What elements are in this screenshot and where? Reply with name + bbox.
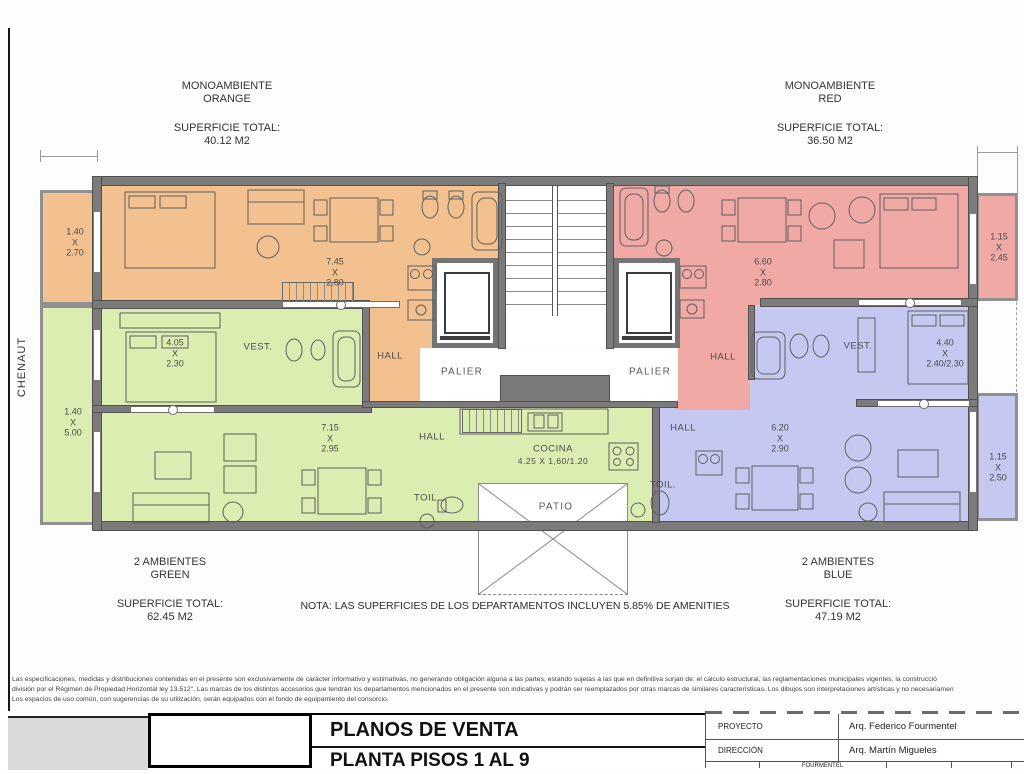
- dimension-tick: [40, 150, 41, 162]
- room-label-hall-blue: HALL: [670, 423, 696, 434]
- direccion-value: Arq. Martín Migueles: [839, 740, 1024, 761]
- disclaimer-line-1: Las especificaciones, medidas y distribu…: [12, 675, 1016, 685]
- dim-blue-living: 6.20 X 2.90: [771, 422, 789, 454]
- green-name: GREEN: [55, 569, 285, 582]
- dim-orange-balcony: 1.40 X 2.70: [66, 226, 84, 258]
- proyecto-value: Arq. Federico Fourmentel: [839, 714, 1024, 739]
- blue-type: 2 AMBIENTES: [723, 556, 953, 569]
- window-slit: [94, 330, 100, 380]
- dim-blue-bedroom: 4.40 X 2.40/2.30: [926, 337, 964, 369]
- blue-superficie-value: 47.19 M2: [723, 611, 953, 624]
- table-partial-row: FOURMENTEL: [706, 762, 1024, 768]
- green-unit-footer: 2 AMBIENTES GREEN SUPERFICIE TOTAL: 62.4…: [55, 556, 285, 624]
- window-slit: [94, 432, 100, 492]
- elevator-right: [614, 258, 680, 348]
- unit-green-left: [100, 309, 362, 530]
- room-label-palier-left: PALIER: [441, 367, 483, 378]
- wall: [92, 176, 978, 186]
- title-block-table: PROYECTO Arq. Federico Fourmentel DIRECC…: [705, 711, 1024, 768]
- sheet-subtitle: PLANTA PISOS 1 AL 9: [312, 748, 705, 772]
- fourmentel-cell: FOURMENTEL: [759, 763, 886, 769]
- wall: [92, 521, 978, 531]
- cell-divider: [1011, 762, 1012, 768]
- room-label-hall-orange: HALL: [377, 351, 403, 362]
- red-superficie-value: 36.50 M2: [715, 135, 945, 148]
- red-name: RED: [715, 93, 945, 106]
- orange-superficie-value: 40.12 M2: [112, 135, 342, 148]
- title-block: PLANOS DE VENTA PLANTA PISOS 1 AL 9 PROY…: [0, 711, 1024, 768]
- street-label: CHENAUT: [16, 307, 28, 427]
- title-block-main: PLANOS DE VENTA PLANTA PISOS 1 AL 9: [312, 713, 705, 770]
- green-type: 2 AMBIENTES: [55, 556, 285, 569]
- dimension-line: [40, 156, 98, 157]
- window-slit: [94, 212, 100, 272]
- blue-unit-footer: 2 AMBIENTES BLUE SUPERFICIE TOTAL: 47.19…: [723, 556, 953, 624]
- window-marker: [877, 400, 970, 407]
- wall: [498, 183, 506, 349]
- table-row-proyecto: PROYECTO Arq. Federico Fourmentel: [706, 714, 1024, 740]
- room-label-toil-green: TOIL.: [414, 493, 440, 504]
- dim-red-living: 6.60 X 2.80: [754, 256, 772, 288]
- room-label-toil-blue: TOIL.: [650, 480, 676, 491]
- orange-name: ORANGE: [112, 93, 342, 106]
- green-superficie-value: 62.45 M2: [55, 611, 285, 624]
- room-label-vest-blue: VEST.: [844, 341, 873, 352]
- plan-sheet: { "sheet": { "street_label": "CHENAUT", …: [0, 0, 1024, 768]
- sheet-title: PLANOS DE VENTA: [312, 715, 705, 748]
- dim-orange-living: 7.45 X 2.80: [326, 256, 344, 288]
- logo-box: [148, 713, 312, 768]
- patio-cross-icon: [479, 484, 627, 594]
- dimension-tick: [1017, 146, 1018, 198]
- red-superficie-label: SUPERFICIE TOTAL:: [715, 122, 945, 135]
- entry-wall-block: [500, 375, 610, 402]
- disclaimer-line-2: división por el Régimen de Propiedad Hor…: [12, 685, 1016, 695]
- orange-unit-header: MONOAMBIENTE ORANGE SUPERFICIE TOTAL: 40…: [112, 80, 342, 148]
- proyecto-label: PROYECTO: [706, 714, 839, 739]
- sheet-left-border: [8, 28, 10, 712]
- direccion-label: DIRECCIÓN: [706, 740, 839, 761]
- window-marker: [858, 299, 962, 306]
- room-label-hall-green: HALL: [419, 432, 445, 443]
- dim-green-balcony: 1.40 X 5.00: [64, 406, 82, 438]
- dim-green-bedroom: 4.05 X 2.30: [166, 337, 184, 369]
- dim-blue-balcony: 1.15 X 2.50: [989, 451, 1007, 483]
- staircase: [506, 184, 606, 347]
- wall: [652, 407, 660, 523]
- wall: [748, 305, 755, 380]
- room-label-hall-red: HALL: [710, 352, 736, 363]
- window-marker: [282, 301, 400, 308]
- wall: [606, 183, 614, 349]
- amenities-note: NOTA: LAS SUPERFICIES DE LOS DEPARTAMENT…: [240, 600, 790, 612]
- window-slit: [970, 214, 976, 284]
- cell-divider: [886, 762, 887, 768]
- room-label-palier-right: PALIER: [629, 367, 671, 378]
- blue-name: BLUE: [723, 569, 953, 582]
- orange-type: MONOAMBIENTE: [112, 80, 342, 93]
- elevator-left: [432, 258, 498, 348]
- room-label-cocina: COCINA: [533, 444, 573, 455]
- kitchen-counter-hatch: [462, 409, 522, 433]
- disclaimer-line-3: Los espacios de uso común, con sugerenci…: [12, 695, 1016, 705]
- dimension-line: [977, 152, 1017, 153]
- title-block-gray-cell: [8, 716, 148, 770]
- dim-red-balcony: 1.15 X 2.45: [990, 231, 1008, 263]
- wall: [362, 300, 370, 408]
- window-marker: [130, 406, 215, 413]
- wall: [362, 401, 678, 408]
- dimension-tick: [97, 150, 98, 162]
- room-label-vest-green: VEST.: [244, 342, 273, 353]
- orange-superficie-label: SUPERFICIE TOTAL:: [112, 122, 342, 135]
- red-unit-header: MONOAMBIENTE RED SUPERFICIE TOTAL: 36.50…: [715, 80, 945, 148]
- dimension-dashed-line: [1016, 302, 1017, 392]
- table-row-direccion: DIRECCIÓN Arq. Martín Migueles: [706, 740, 1024, 762]
- red-type: MONOAMBIENTE: [715, 80, 945, 93]
- room-label-cocina-dim: 4.25 X 1,60/1.20: [518, 456, 588, 466]
- window-slit: [970, 412, 976, 492]
- cell-divider: [951, 762, 952, 768]
- dim-green-living: 7.15 X 2.95: [321, 422, 339, 454]
- patio-shaft: [478, 483, 628, 595]
- room-label-patio: PATIO: [539, 502, 574, 513]
